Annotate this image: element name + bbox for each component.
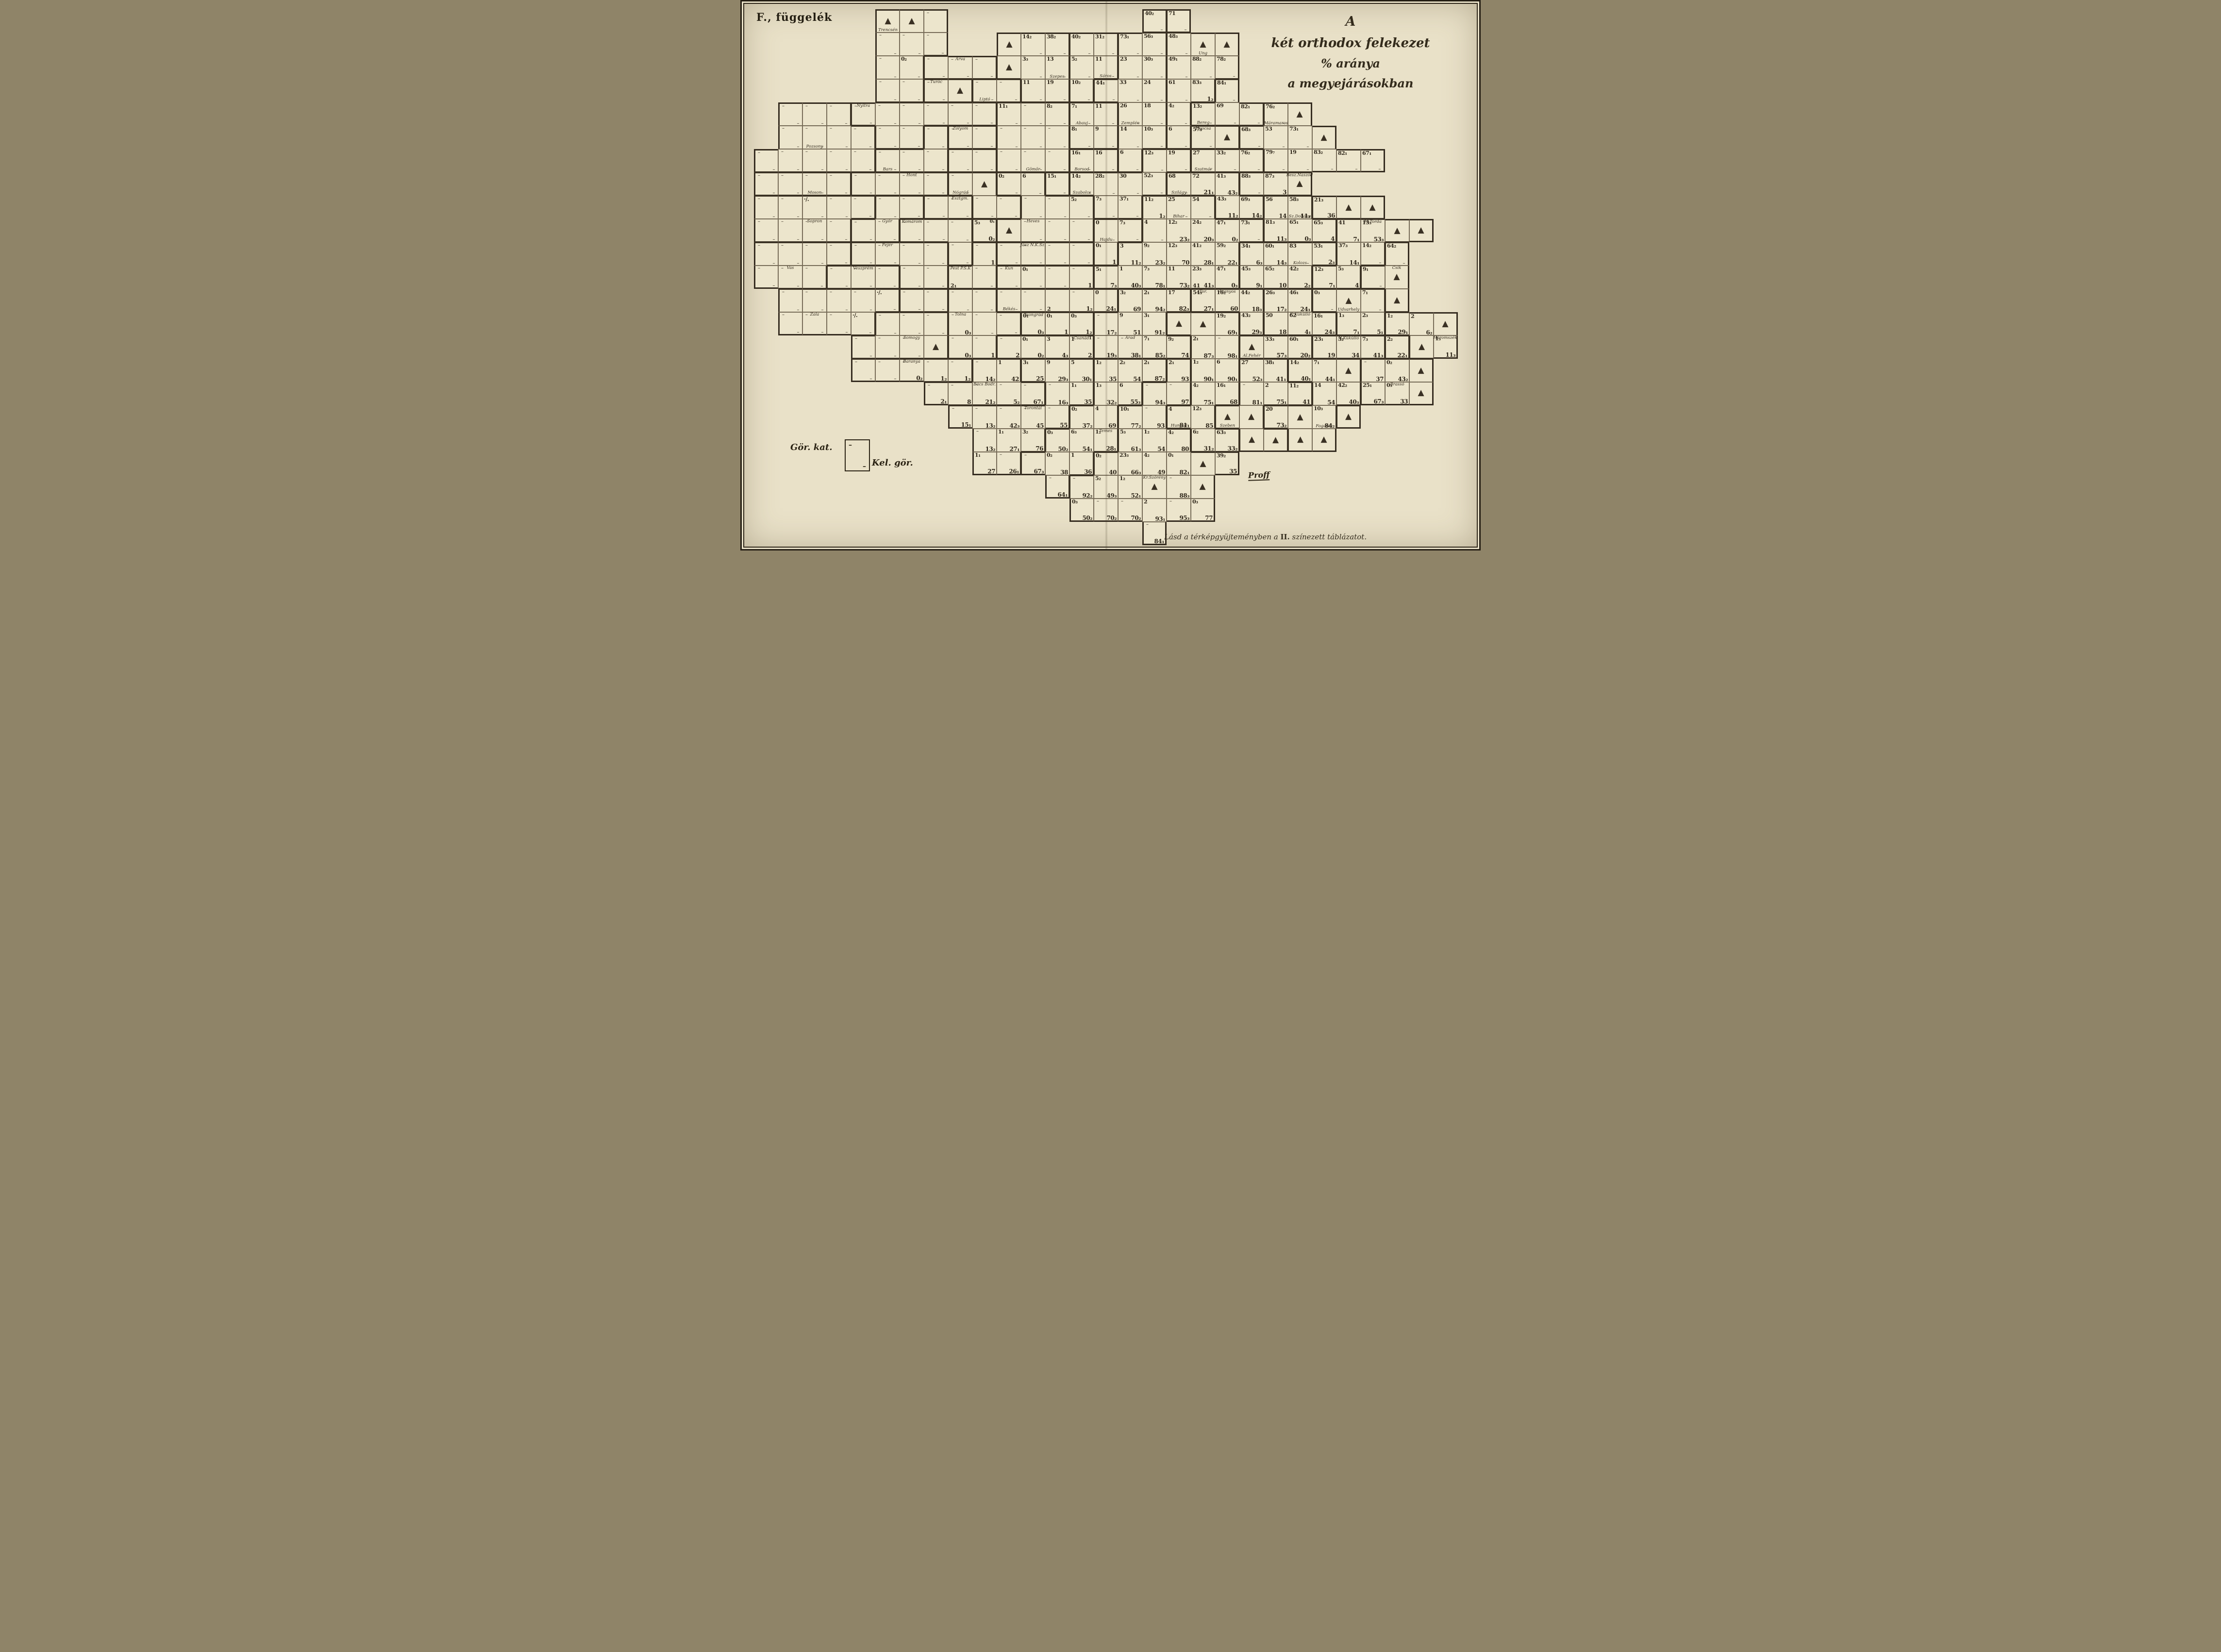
value-eastern-orthodox: – — [846, 167, 848, 172]
value-eastern-orthodox: – — [846, 144, 848, 150]
district-cell: 1₃32₂ — [1094, 382, 1118, 405]
value-eastern-orthodox: 57₃ — [1277, 352, 1286, 359]
value-eastern-orthodox: 69₁ — [1228, 329, 1237, 336]
legend-top-mark: – — [849, 441, 852, 449]
value-eastern-orthodox: 0₂ — [988, 235, 995, 242]
value-eastern-orthodox: – — [1161, 237, 1164, 243]
district-cell: ▲ — [1409, 359, 1434, 382]
legend-label-eastern-orthodox: Kel. gör. — [872, 458, 913, 468]
district-cell: 73₁– — [1288, 126, 1312, 149]
value-eastern-orthodox: – — [846, 307, 848, 313]
district-cell: –– — [851, 359, 875, 382]
district-cell: ▲ — [1288, 405, 1312, 429]
district-cell: –– — [948, 219, 972, 242]
district-cell: ––Nyitra — [851, 102, 875, 126]
value-greek-catholic: 28₂ — [1095, 173, 1104, 179]
value-eastern-orthodox: 33₂ — [1228, 445, 1237, 452]
value-greek-catholic: 19 — [1168, 150, 1175, 156]
district-cell: –1 — [972, 242, 997, 266]
value-eastern-orthodox: 31₂ — [1204, 445, 1214, 452]
mountain-icon: ▲ — [1006, 39, 1012, 49]
district-cell: 73₁– — [1239, 219, 1264, 242]
district-cell: –97 — [1167, 382, 1191, 405]
mountain-icon: ▲ — [1223, 39, 1230, 49]
value-eastern-orthodox: 15₁ — [961, 421, 971, 428]
mountain-icon: ▲ — [1418, 388, 1424, 398]
district-cell: –– — [875, 56, 900, 79]
value-greek-catholic: – — [830, 219, 832, 224]
district-cell: –– — [875, 102, 900, 126]
value-greek-catholic: – — [781, 266, 784, 271]
value-greek-catholic: – — [927, 33, 929, 38]
district-cell: 6₂31₂ — [1191, 429, 1215, 452]
value-eastern-orthodox: – — [1137, 191, 1139, 196]
value-greek-catholic: 37₃ — [1338, 242, 1348, 249]
district-cell: 37₃14₁ — [1336, 242, 1361, 266]
value-greek-catholic: 0₁ — [1168, 452, 1173, 458]
value-greek-catholic: – — [927, 126, 930, 132]
district-cell: 26–Zemplén — [1118, 102, 1142, 126]
district-cell: –13₂ — [972, 405, 997, 429]
map-title-line1: A — [1241, 14, 1460, 29]
county-label: Arad — [1125, 335, 1136, 340]
value-greek-catholic: 11₁ — [999, 103, 1008, 109]
value-greek-catholic: – — [758, 219, 760, 224]
value-greek-catholic: 2₁ — [1193, 335, 1198, 342]
district-cell: –– — [997, 126, 1021, 149]
value-greek-catholic: 7₃ — [1119, 219, 1125, 226]
district-cell: ▲ — [1409, 335, 1434, 359]
value-greek-catholic: 7₃ — [1362, 336, 1368, 342]
value-greek-catholic: – — [902, 243, 905, 248]
value-eastern-orthodox: 50₂ — [1058, 446, 1068, 452]
mountain-icon: ▲ — [1224, 132, 1230, 142]
caption-pre: Lásd a térképgyüjteményben a — [1164, 533, 1278, 541]
value-greek-catholic: 0₂ — [1096, 452, 1101, 459]
district-cell: 6– — [1021, 172, 1045, 196]
value-greek-catholic: 11₂ — [1289, 383, 1299, 389]
district-cell: 87₃3 — [1264, 172, 1288, 196]
value-greek-catholic: 31₂ — [1095, 33, 1104, 40]
value-greek-catholic: 11 — [1095, 56, 1102, 62]
value-greek-catholic: 5₂ — [1071, 196, 1076, 202]
district-cell: ▲ — [1191, 475, 1215, 499]
value-greek-catholic: 88₃ — [1241, 173, 1251, 179]
county-label: Abauj — [1076, 121, 1088, 126]
value-eastern-orthodox: – — [1113, 214, 1115, 219]
district-cell: 40₂– — [1142, 9, 1167, 33]
value-eastern-orthodox: 26₁ — [1009, 468, 1019, 475]
district-cell: ––Hont — [900, 172, 924, 196]
value-eastern-orthodox: 23₂ — [1180, 236, 1189, 243]
value-eastern-orthodox: – — [991, 284, 993, 289]
value-eastern-orthodox: – — [1234, 120, 1236, 126]
value-eastern-orthodox: – — [1186, 74, 1188, 80]
district-cell: 4₂– — [1167, 102, 1191, 126]
district-cell: 14₂– — [1021, 33, 1045, 56]
value-greek-catholic: 15₁ — [1047, 173, 1056, 179]
value-greek-catholic: 3₁ — [1144, 312, 1149, 318]
value-greek-catholic: – — [975, 57, 978, 62]
district-cell: 1782₃ — [1167, 289, 1191, 312]
value-eastern-orthodox: 2₁ — [940, 398, 947, 405]
mountain-icon: ▲ — [1224, 412, 1231, 421]
value-greek-catholic: – — [952, 406, 954, 411]
value-eastern-orthodox: 52₃ — [1252, 376, 1262, 383]
district-cell: –93 — [1142, 405, 1167, 429]
value-eastern-orthodox: – — [1088, 260, 1090, 266]
value-eastern-orthodox: – — [1040, 144, 1042, 150]
value-greek-catholic: – — [781, 243, 784, 248]
district-cell: –– — [875, 312, 900, 335]
value-eastern-orthodox: 13₂ — [985, 422, 995, 429]
value-greek-catholic: 19₂ — [1217, 313, 1226, 319]
district-cell: –– — [754, 242, 778, 266]
mountain-icon: ▲ — [1369, 202, 1375, 212]
map-title-line4: a megyejárásokban — [1241, 76, 1460, 90]
value-greek-catholic: 88₂ — [1192, 56, 1202, 62]
district-cell: ▲ — [1385, 219, 1409, 242]
value-greek-catholic: 73₁ — [1241, 219, 1250, 226]
value-eastern-orthodox: 70 — [1182, 259, 1189, 266]
district-cell: –– — [972, 289, 997, 312]
value-eastern-orthodox: 90₁ — [1204, 376, 1214, 383]
district-cell: ––Pozsony — [802, 126, 827, 149]
value-greek-catholic: – — [902, 173, 905, 178]
value-eastern-orthodox: – — [1258, 120, 1260, 126]
mountain-icon: ▲ — [1394, 295, 1400, 304]
district-cell: 39₂35 — [1215, 452, 1239, 475]
value-eastern-orthodox: 0₂ — [1232, 236, 1238, 243]
value-eastern-orthodox: – — [845, 190, 848, 196]
value-eastern-orthodox: – — [991, 307, 993, 313]
value-greek-catholic: 7₃ — [1144, 266, 1149, 272]
value-greek-catholic: 11 — [1168, 266, 1175, 272]
district-cell: ––Vas — [778, 266, 802, 289]
value-eastern-orthodox: – — [797, 214, 800, 219]
district-cell: ▲Udvarhely — [1336, 289, 1361, 312]
district-cell: 2₂22₁ — [1385, 335, 1409, 359]
value-eastern-orthodox: 51 — [1133, 329, 1141, 336]
district-cell: 1₂90₁ — [1191, 359, 1215, 382]
district-cell: –– — [827, 266, 851, 289]
value-greek-catholic: 9 — [1095, 126, 1099, 132]
district-cell: ·/.– — [875, 289, 900, 312]
district-cell: 0₂37₂ — [1069, 405, 1094, 429]
district-cell: 53₁2₃ — [1312, 242, 1336, 266]
district-cell: –– — [972, 149, 997, 172]
value-eastern-orthodox: – — [1016, 144, 1018, 150]
district-cell: ▲Csik — [1385, 266, 1409, 289]
county-label: Pest P.S.K — [950, 266, 970, 271]
district-cell: –– — [972, 196, 997, 219]
county-label: Aranyos — [1219, 289, 1236, 294]
county-label: Ung — [1199, 51, 1207, 56]
value-greek-catholic: 9 — [1047, 359, 1050, 366]
value-eastern-orthodox: – — [991, 120, 993, 126]
district-cell: 38₁41₁ — [1264, 359, 1288, 382]
value-eastern-orthodox: – — [1136, 237, 1139, 242]
district-cell: 1173₂ — [1167, 266, 1191, 289]
value-greek-catholic: – — [903, 289, 905, 295]
value-greek-catholic: – — [1000, 313, 1002, 318]
district-cell: ▲ — [1336, 405, 1361, 429]
district-cell: –– — [802, 242, 827, 266]
district-cell: –– — [827, 196, 851, 219]
value-eastern-orthodox: – — [1186, 214, 1188, 219]
value-greek-catholic: 69₃ — [1241, 196, 1250, 202]
value-greek-catholic: 3 — [1047, 336, 1050, 342]
county-label: Jász N.K.Sz. — [1020, 243, 1046, 248]
district-cell: –– — [875, 126, 900, 149]
value-greek-catholic: – — [1048, 243, 1051, 248]
district-cell: ▲ — [997, 219, 1021, 242]
value-greek-catholic: 38₁ — [1265, 359, 1274, 366]
value-eastern-orthodox: – — [1307, 144, 1309, 150]
value-greek-catholic: – — [928, 383, 930, 388]
county-label: Bács Bodr. — [973, 382, 996, 387]
value-greek-catholic: – — [927, 289, 929, 295]
value-eastern-orthodox: – — [797, 237, 800, 242]
value-greek-catholic: – — [781, 219, 784, 224]
value-greek-catholic: – — [854, 173, 857, 178]
mountain-icon: ▲ — [1442, 319, 1448, 329]
value-greek-catholic: – — [927, 56, 930, 62]
value-eastern-orthodox: 41 — [1303, 399, 1310, 405]
value-eastern-orthodox: – — [1064, 97, 1066, 102]
value-eastern-orthodox: 64₁ — [1058, 491, 1068, 498]
district-cell: 26₃17₂ — [1264, 289, 1288, 312]
mountain-icon: ▲ — [1296, 109, 1303, 119]
value-eastern-orthodox: 1₂ — [1159, 213, 1165, 219]
mountain-icon: ▲ — [1394, 225, 1400, 235]
district-cell: 7221₁ — [1191, 172, 1215, 196]
value-eastern-orthodox: – — [991, 167, 993, 172]
value-eastern-orthodox: – — [943, 97, 945, 102]
value-eastern-orthodox: 94₂ — [1155, 306, 1165, 313]
bottom-caption: Lásd a térképgyüjteményben a II. színeze… — [1164, 533, 1465, 541]
value-greek-catholic: – — [1364, 359, 1367, 365]
district-cell: –– — [851, 126, 875, 149]
district-cell: 71– — [1167, 9, 1191, 33]
value-eastern-orthodox: – — [1015, 97, 1018, 102]
value-greek-catholic: – — [927, 173, 929, 178]
district-cell: 28₂– — [1094, 172, 1118, 196]
value-eastern-orthodox: – — [773, 237, 775, 242]
value-eastern-orthodox: – — [1113, 237, 1115, 243]
county-label: Esztgm. — [952, 196, 969, 201]
district-cell: 1₂28₁Temes — [1094, 429, 1118, 452]
district-cell: 8₂– — [1045, 102, 1069, 126]
value-eastern-orthodox: – — [967, 307, 969, 313]
district-cell: 26₂ — [1409, 312, 1434, 335]
mountain-icon: ▲ — [1345, 295, 1352, 305]
district-cell: 12₂23₂ — [1167, 219, 1191, 242]
mountain-icon: ▲ — [1296, 179, 1303, 188]
value-greek-catholic: 4₂ — [1168, 429, 1173, 435]
district-cell: 23₃41₃41 — [1191, 266, 1215, 289]
value-greek-catholic: 14₂ — [1022, 33, 1032, 40]
value-eastern-orthodox: – — [1161, 144, 1163, 149]
county-label: Temes — [1099, 429, 1113, 434]
district-cell: 1₁35 — [1069, 382, 1094, 405]
district-cell: –21₂Bács Bodr. — [972, 382, 997, 405]
value-greek-catholic: 1₁ — [1071, 382, 1076, 388]
value-eastern-orthodox: 17₂ — [1107, 329, 1117, 336]
district-cell: 41₃43₂ — [1215, 172, 1239, 196]
value-eastern-orthodox: – — [797, 307, 800, 313]
district-cell: 1₂54 — [1142, 429, 1167, 452]
value-greek-catholic: 24₂ — [1192, 219, 1202, 225]
district-cell: –– — [1045, 219, 1069, 242]
district-cell: –– — [875, 335, 900, 359]
value-eastern-orthodox: 70₂ — [1131, 515, 1141, 521]
value-greek-catholic: – — [1049, 475, 1052, 481]
district-cell: 1₃7₁ — [1336, 312, 1361, 335]
district-cell: 11₁– — [997, 102, 1021, 126]
district-cell: ▲ — [1288, 429, 1312, 452]
district-cell: 5₃4 — [1336, 266, 1361, 289]
value-eastern-orthodox: – — [1258, 144, 1261, 149]
value-eastern-orthodox: – — [870, 260, 872, 266]
value-greek-catholic: 6 — [1169, 126, 1172, 132]
value-greek-catholic: – — [1097, 313, 1100, 318]
value-greek-catholic: 76₂ — [1241, 150, 1250, 156]
mountain-icon: ▲ — [1393, 272, 1400, 282]
district-cell: 5₂– — [1069, 196, 1094, 219]
value-greek-catholic: 47₁ — [1217, 266, 1226, 272]
value-greek-catholic: – — [758, 196, 760, 201]
value-eastern-orthodox: 1 — [991, 352, 995, 359]
value-eastern-orthodox: – — [894, 121, 897, 126]
district-cell: 2073₂ — [1264, 405, 1288, 429]
value-greek-catholic: 52₃ — [1144, 172, 1153, 179]
district-cell: ––Veszprém — [851, 266, 875, 289]
value-greek-catholic: – — [805, 149, 808, 154]
district-cell: 12₃7₁ — [1312, 266, 1336, 289]
value-greek-catholic: 7₃ — [1096, 196, 1101, 202]
county-label: Veszprém — [853, 266, 873, 271]
district-cell: 6– — [1118, 149, 1142, 172]
value-eastern-orthodox: 29₃ — [1058, 376, 1068, 383]
district-cell: 10₂– — [1069, 79, 1094, 102]
district-cell: –– — [827, 312, 851, 335]
district-cell: –– — [924, 196, 948, 219]
value-greek-catholic: 68₃ — [1241, 126, 1251, 133]
district-cell: 88₃– — [1239, 172, 1264, 196]
value-greek-catholic: – — [1000, 266, 1002, 271]
value-eastern-orthodox: – — [869, 214, 872, 219]
value-eastern-orthodox: – — [894, 376, 897, 382]
value-eastern-orthodox: – — [1064, 51, 1066, 56]
value-eastern-orthodox: 23₂ — [1155, 259, 1165, 266]
value-greek-catholic: 19 — [1289, 149, 1296, 155]
value-greek-catholic: – — [1000, 80, 1002, 85]
value-eastern-orthodox: 2 — [1088, 352, 1092, 359]
value-eastern-orthodox: – — [943, 74, 945, 79]
district-cell: 83₂– — [1312, 149, 1336, 172]
district-cell: –1₂ — [924, 359, 948, 382]
value-eastern-orthodox: – — [894, 190, 897, 196]
value-eastern-orthodox: – — [1064, 260, 1067, 266]
value-greek-catholic: 7₁ — [1314, 359, 1319, 366]
county-label: Ugocsa — [1196, 126, 1211, 131]
value-eastern-orthodox: 54 — [1133, 376, 1141, 383]
district-cell: 655₃ — [1118, 382, 1142, 405]
value-greek-catholic: – — [927, 243, 929, 248]
value-eastern-orthodox: – — [918, 51, 921, 56]
value-greek-catholic: – — [1048, 219, 1051, 224]
district-cell: –– — [924, 172, 948, 196]
value-greek-catholic: 8₁ — [1071, 126, 1077, 132]
value-eastern-orthodox: 45 — [1036, 422, 1044, 429]
district-cell: 25–Bihar — [1167, 196, 1191, 219]
value-greek-catholic: – — [1048, 126, 1051, 131]
value-greek-catholic: – — [1072, 219, 1075, 224]
value-greek-catholic: – — [879, 56, 882, 61]
district-cell: –– — [1045, 266, 1069, 289]
value-greek-catholic: 9₁ — [1363, 266, 1368, 272]
district-cell: –– — [972, 56, 997, 79]
value-eastern-orthodox: 19₃ — [1107, 352, 1117, 359]
mountain-icon: ▲ — [885, 16, 891, 26]
county-label: Gömör — [1026, 167, 1040, 172]
county-label: Csik — [1392, 266, 1402, 270]
district-cell: 6₃54₁ — [1069, 429, 1094, 452]
district-cell: –– — [851, 172, 875, 196]
district-cell: –64₁ — [1045, 475, 1069, 499]
value-greek-catholic: 2 — [1144, 499, 1147, 505]
value-eastern-orthodox: – — [846, 330, 848, 335]
district-cell: 30– — [1118, 172, 1142, 196]
value-greek-catholic: – — [1146, 522, 1149, 527]
district-cell: 56₃– — [1142, 33, 1167, 56]
value-eastern-orthodox: 11₂ — [1228, 212, 1238, 219]
mountain-icon: ▲ — [1297, 434, 1303, 444]
district-cell: ––Sopron — [802, 219, 827, 242]
district-cell: 59₂22₁ — [1215, 242, 1239, 266]
value-eastern-orthodox: 80 — [1181, 446, 1189, 452]
value-greek-catholic: – — [1000, 196, 1002, 201]
value-greek-catholic: 9₂ — [1144, 242, 1149, 249]
value-greek-catholic: – — [854, 126, 856, 132]
value-eastern-orthodox: – — [1234, 167, 1236, 172]
county-label: M.Torda — [1364, 219, 1382, 224]
value-greek-catholic: 23₃ — [1192, 266, 1202, 272]
value-eastern-orthodox: – — [1331, 307, 1334, 312]
district-cell: ▲ — [1336, 196, 1361, 219]
value-eastern-orthodox: – — [967, 120, 969, 126]
district-cell: 5018 — [1264, 312, 1288, 335]
district-cell: 7₃78₁ — [1142, 266, 1167, 289]
district-cell: 0₂40 — [1094, 452, 1118, 475]
value-eastern-orthodox: – — [1040, 237, 1042, 242]
county-label: Torontál — [1024, 406, 1042, 411]
value-eastern-orthodox: 76 — [1035, 445, 1043, 452]
value-eastern-orthodox: 68 — [1230, 399, 1237, 405]
district-cell: 2₃5₁ — [1361, 312, 1385, 335]
value-eastern-orthodox: – — [773, 214, 775, 219]
value-greek-catholic: 10₂ — [1071, 79, 1081, 85]
value-eastern-orthodox: – — [1258, 237, 1260, 242]
district-cell: 5614 — [1264, 196, 1288, 219]
value-greek-catholic: – — [1000, 243, 1002, 248]
value-greek-catholic: – — [879, 313, 881, 318]
mountain-icon: ▲ — [1320, 133, 1327, 142]
value-eastern-orthodox: – — [918, 214, 920, 219]
district-cell: –– — [827, 102, 851, 126]
value-eastern-orthodox: – — [1015, 214, 1018, 219]
